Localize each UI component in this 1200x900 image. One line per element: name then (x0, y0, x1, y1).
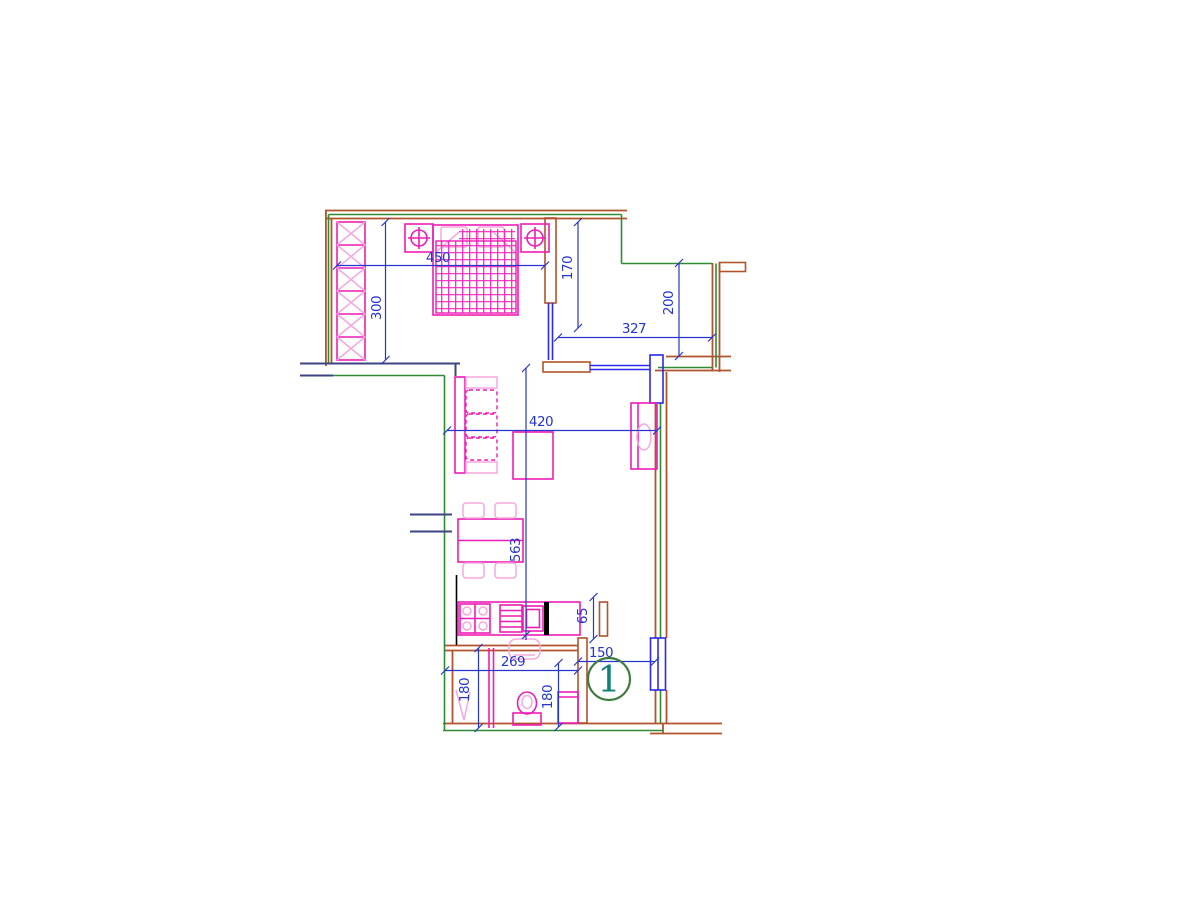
chair (495, 563, 516, 578)
dim-bedroom-width: 450 (426, 250, 450, 266)
dim-living-length: 563 (508, 538, 524, 562)
bathroom-furniture (456, 639, 578, 728)
bedroom-furniture (337, 222, 549, 360)
sofa-back (455, 377, 465, 473)
dim-upper-right-width: 327 (622, 321, 646, 337)
partition-pier (545, 218, 556, 303)
kitchen-furniture (458, 602, 580, 635)
wall-tab-top-right (720, 263, 746, 272)
lamp-symbol-right (524, 227, 546, 249)
dim-bedroom-depth: 300 (369, 296, 385, 320)
dim-upper-right-depth: 200 (661, 291, 677, 315)
chair (463, 503, 484, 518)
sofa-cushion (466, 438, 497, 460)
dim-counter-depth: 65 (575, 608, 591, 624)
wc-wall (578, 638, 587, 723)
living-furniture (455, 377, 657, 578)
wall-pier (543, 362, 590, 372)
floor-plan-canvas: 450 300 170 327 200 420 563 65 269 150 1… (0, 0, 1200, 900)
cabinet-sketch (637, 424, 651, 450)
dim-living-width: 420 (529, 414, 553, 430)
kitchen-pier (600, 602, 608, 636)
chair (463, 563, 484, 578)
sofa-cushion (466, 414, 497, 437)
counter-divider (544, 602, 549, 635)
unit-number-label: 1 (598, 660, 621, 701)
sofa-armrest-top (466, 377, 497, 388)
sofa-armrest-bottom (466, 462, 497, 473)
bathroom-partition (489, 648, 494, 728)
sofa-cushion (466, 390, 497, 413)
wall-cabinet (631, 403, 657, 469)
kitchen-cabinet (500, 605, 522, 632)
dim-bath-left-depth: 180 (457, 678, 473, 702)
floor-plan-drawing: 450 300 170 327 200 420 563 65 269 150 1… (0, 0, 1200, 900)
unit-number-badge: 1 (588, 658, 630, 701)
bed-blanket-hatch-top (459, 229, 515, 241)
lamp-symbol-left (408, 227, 430, 249)
dim-bathroom-width: 269 (501, 654, 525, 670)
shared-walls (300, 363, 460, 532)
coffee-table (513, 432, 553, 479)
chair (495, 503, 516, 518)
dim-closet-wall: 170 (560, 256, 576, 280)
dim-bath-right-depth: 180 (540, 685, 556, 709)
window-column (650, 355, 663, 403)
